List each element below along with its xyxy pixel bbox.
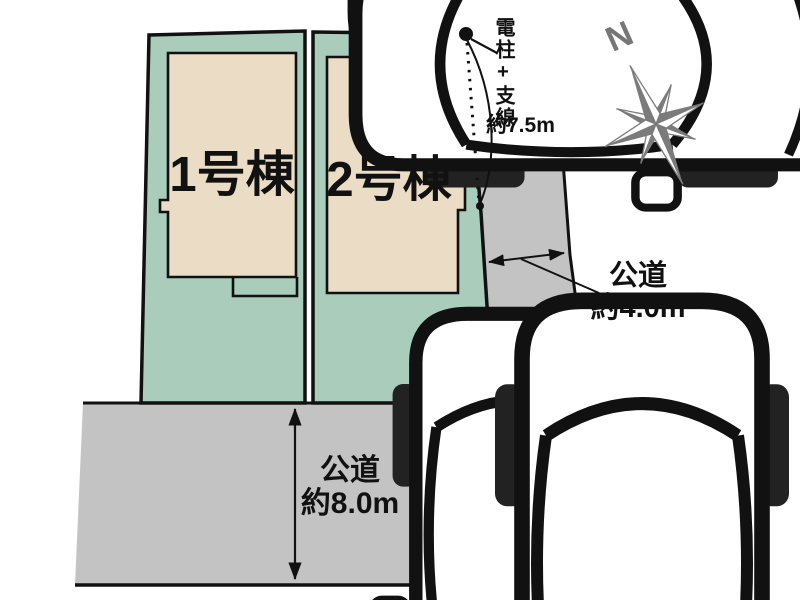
road-east-width: 約4.0m [570, 293, 706, 325]
building-2-label: 2号棟 [321, 154, 457, 208]
building-1-label: 1号棟 [164, 149, 300, 203]
pole-span-label: 約7.5m [486, 114, 555, 137]
guy-wire-anchor-dot [476, 202, 484, 210]
road-east-name: 公道 [570, 261, 706, 293]
road-east-label: 公道 約4.0m [570, 261, 706, 325]
road-south-width: 約8.0m [282, 487, 418, 520]
road-south-label: 公道 約8.0m [282, 454, 418, 520]
site-plan: 1号棟 2号棟 電柱+支線 約7.5m 公道 約4.0m 公道 約8.0m N [0, 0, 800, 600]
utility-pole-label: 電柱+支線 [493, 17, 513, 129]
utility-pole-dot [459, 27, 473, 41]
car-icon [471, 301, 800, 600]
road-south-name: 公道 [282, 454, 418, 487]
